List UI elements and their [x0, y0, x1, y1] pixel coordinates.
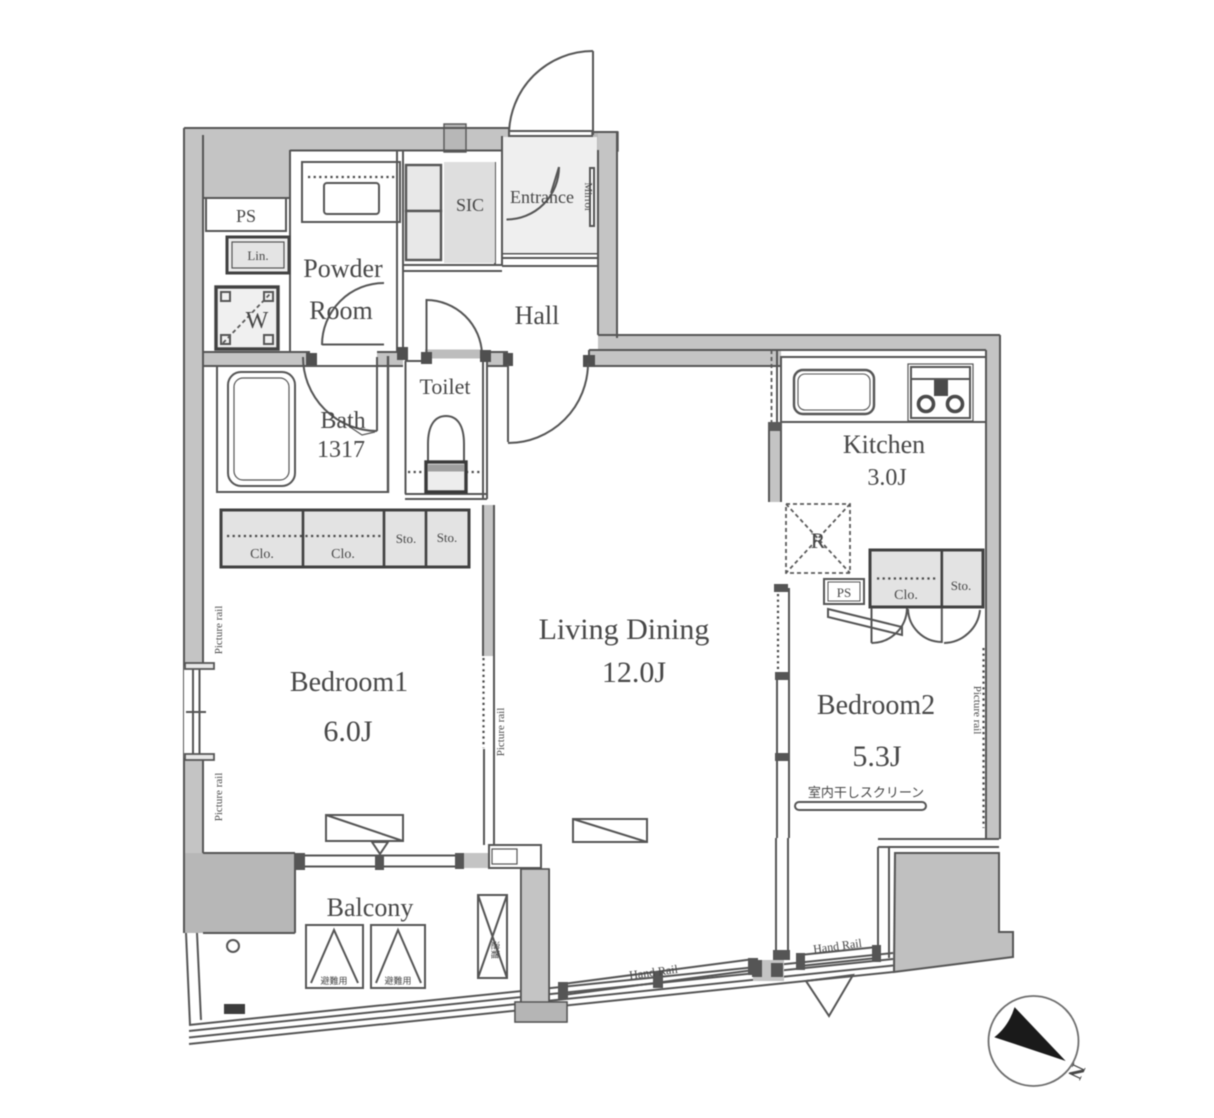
svg-text:Hall: Hall — [515, 301, 560, 330]
svg-text:12.0J: 12.0J — [602, 656, 667, 689]
svg-text:Kitchen: Kitchen — [843, 430, 925, 459]
svg-text:PS: PS — [837, 585, 851, 600]
svg-text:Bedroom2: Bedroom2 — [817, 690, 935, 721]
svg-text:Toilet: Toilet — [419, 374, 470, 399]
svg-text:Clo.: Clo. — [250, 547, 274, 562]
svg-text:室内干しスクリーン: 室内干しスクリーン — [808, 785, 924, 800]
svg-text:避難: 避難 — [490, 941, 501, 959]
svg-text:Sto.: Sto. — [437, 530, 458, 545]
svg-text:R: R — [811, 528, 826, 553]
svg-text:Picture rail: Picture rail — [495, 708, 507, 757]
svg-text:Room: Room — [309, 296, 373, 325]
svg-text:Living Dining: Living Dining — [539, 613, 710, 646]
svg-text:Mirror: Mirror — [582, 182, 594, 212]
svg-text:PS: PS — [236, 206, 256, 226]
svg-text:1317: 1317 — [317, 437, 365, 463]
svg-text:Picture rail: Picture rail — [213, 606, 225, 655]
svg-text:3.0J: 3.0J — [867, 465, 906, 491]
svg-text:Clo.: Clo. — [331, 547, 355, 562]
svg-text:Picture rail: Picture rail — [971, 686, 983, 735]
svg-text:Clo.: Clo. — [894, 588, 918, 603]
svg-text:Picture rail: Picture rail — [213, 773, 225, 822]
svg-text:6.0J: 6.0J — [323, 715, 373, 748]
svg-text:Powder: Powder — [303, 254, 383, 283]
svg-text:SIC: SIC — [456, 195, 484, 215]
svg-text:Bath: Bath — [320, 408, 365, 434]
svg-text:5.3J: 5.3J — [852, 740, 902, 773]
svg-text:Entrance: Entrance — [510, 187, 574, 207]
svg-text:W: W — [246, 308, 269, 334]
svg-text:Sto.: Sto. — [951, 578, 972, 593]
svg-text:Bedroom1: Bedroom1 — [290, 667, 408, 698]
svg-text:Balcony: Balcony — [327, 893, 414, 922]
svg-text:避難用: 避難用 — [384, 975, 411, 986]
svg-text:Sto.: Sto. — [396, 531, 417, 546]
svg-text:Lin.: Lin. — [247, 248, 268, 263]
svg-text:避難用: 避難用 — [320, 975, 347, 986]
